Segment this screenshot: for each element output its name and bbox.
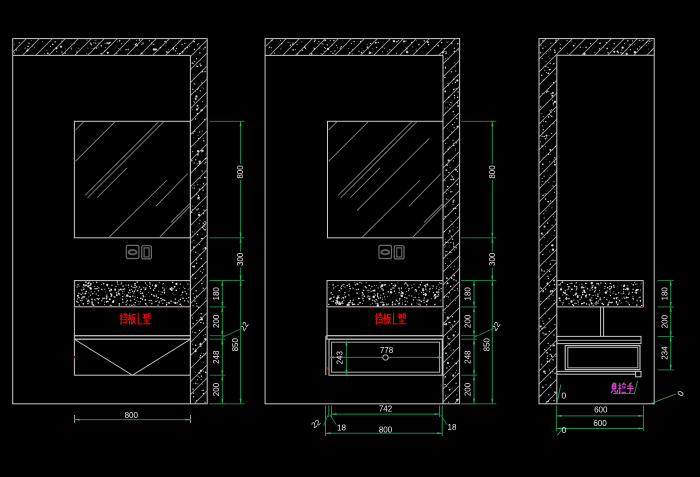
svg-text:742: 742 [379,405,393,414]
svg-text:300: 300 [236,252,245,266]
svg-text:180: 180 [660,287,669,301]
svg-text:300: 300 [488,252,497,266]
svg-text:248: 248 [464,350,473,364]
svg-text:200: 200 [464,314,473,328]
svg-text:800: 800 [236,165,245,179]
svg-text:234: 234 [660,346,669,360]
svg-text:243: 243 [336,350,345,364]
svg-text:248: 248 [212,350,221,364]
svg-text:778: 778 [380,346,394,355]
svg-text:800: 800 [488,165,497,179]
svg-text:18: 18 [337,424,346,433]
svg-text:800: 800 [379,425,393,434]
svg-text:600: 600 [594,406,608,415]
svg-text:200: 200 [212,382,221,396]
svg-text:850: 850 [483,337,492,351]
svg-text:800: 800 [125,411,139,420]
svg-text:180: 180 [212,287,221,301]
svg-text:200: 200 [212,314,221,328]
svg-text:850: 850 [231,337,240,351]
svg-text:200: 200 [660,314,669,328]
svg-text:200: 200 [464,382,473,396]
svg-text:180: 180 [464,287,473,301]
svg-text:600: 600 [593,419,607,428]
svg-text:0: 0 [562,391,567,401]
svg-text:0: 0 [562,425,567,435]
svg-text:18: 18 [448,423,457,432]
